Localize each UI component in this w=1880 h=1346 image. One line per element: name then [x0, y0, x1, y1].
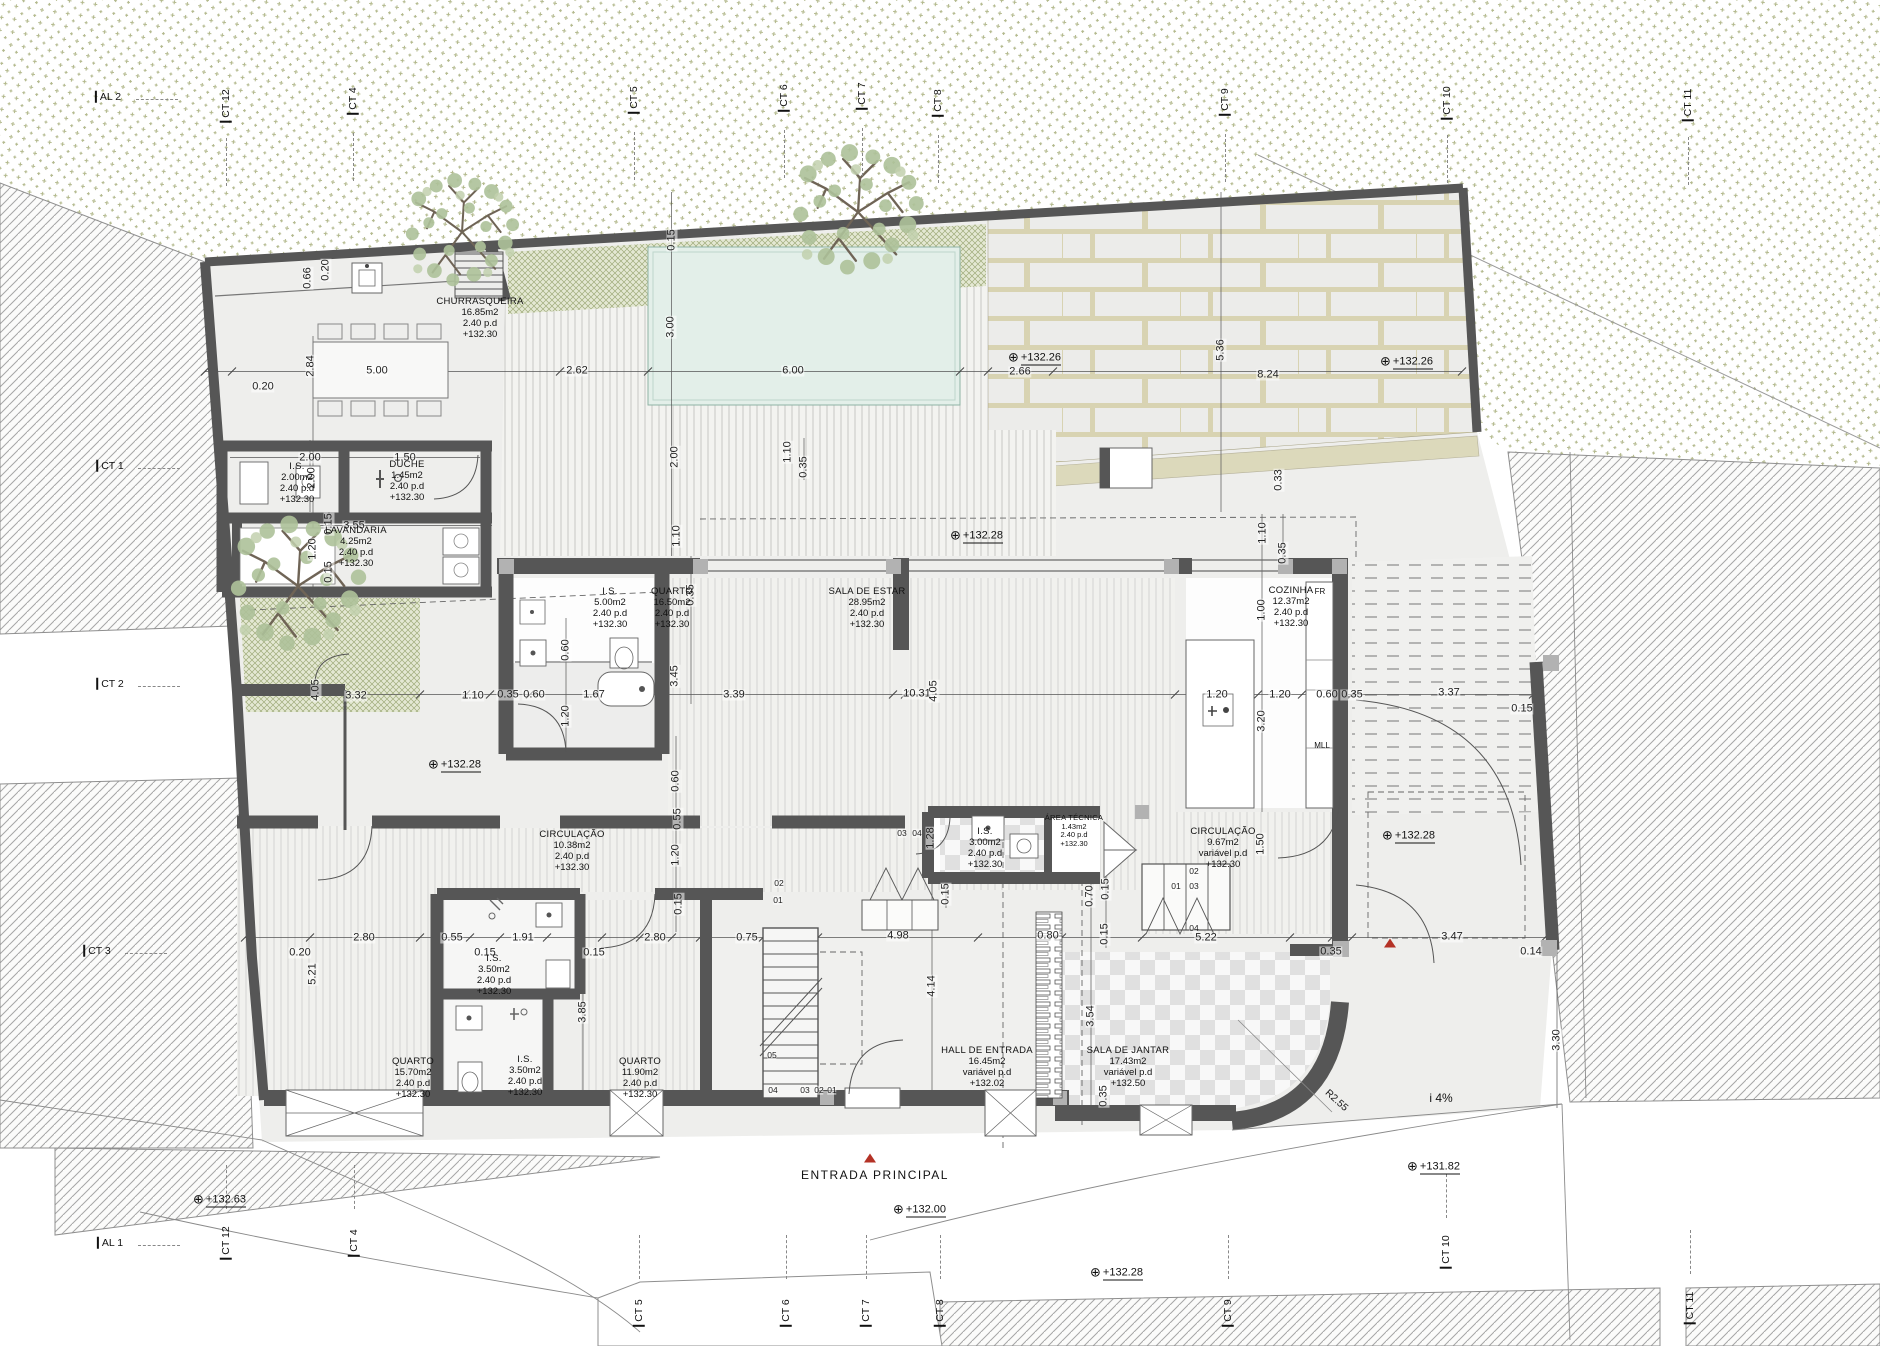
main-stair: [760, 928, 822, 1098]
side-steps: [1352, 556, 1540, 815]
pool: [648, 247, 960, 405]
floor-plan-drawing: [0, 0, 1880, 1346]
secondary-stair: [1142, 864, 1230, 934]
slab-paving: [988, 190, 1477, 466]
louver-strip: [1036, 912, 1062, 1098]
floor-plan-stage: AL 2CT 12CT 4CT 5CT 6CT 7CT 8CT 9CT 10CT…: [0, 0, 1880, 1346]
